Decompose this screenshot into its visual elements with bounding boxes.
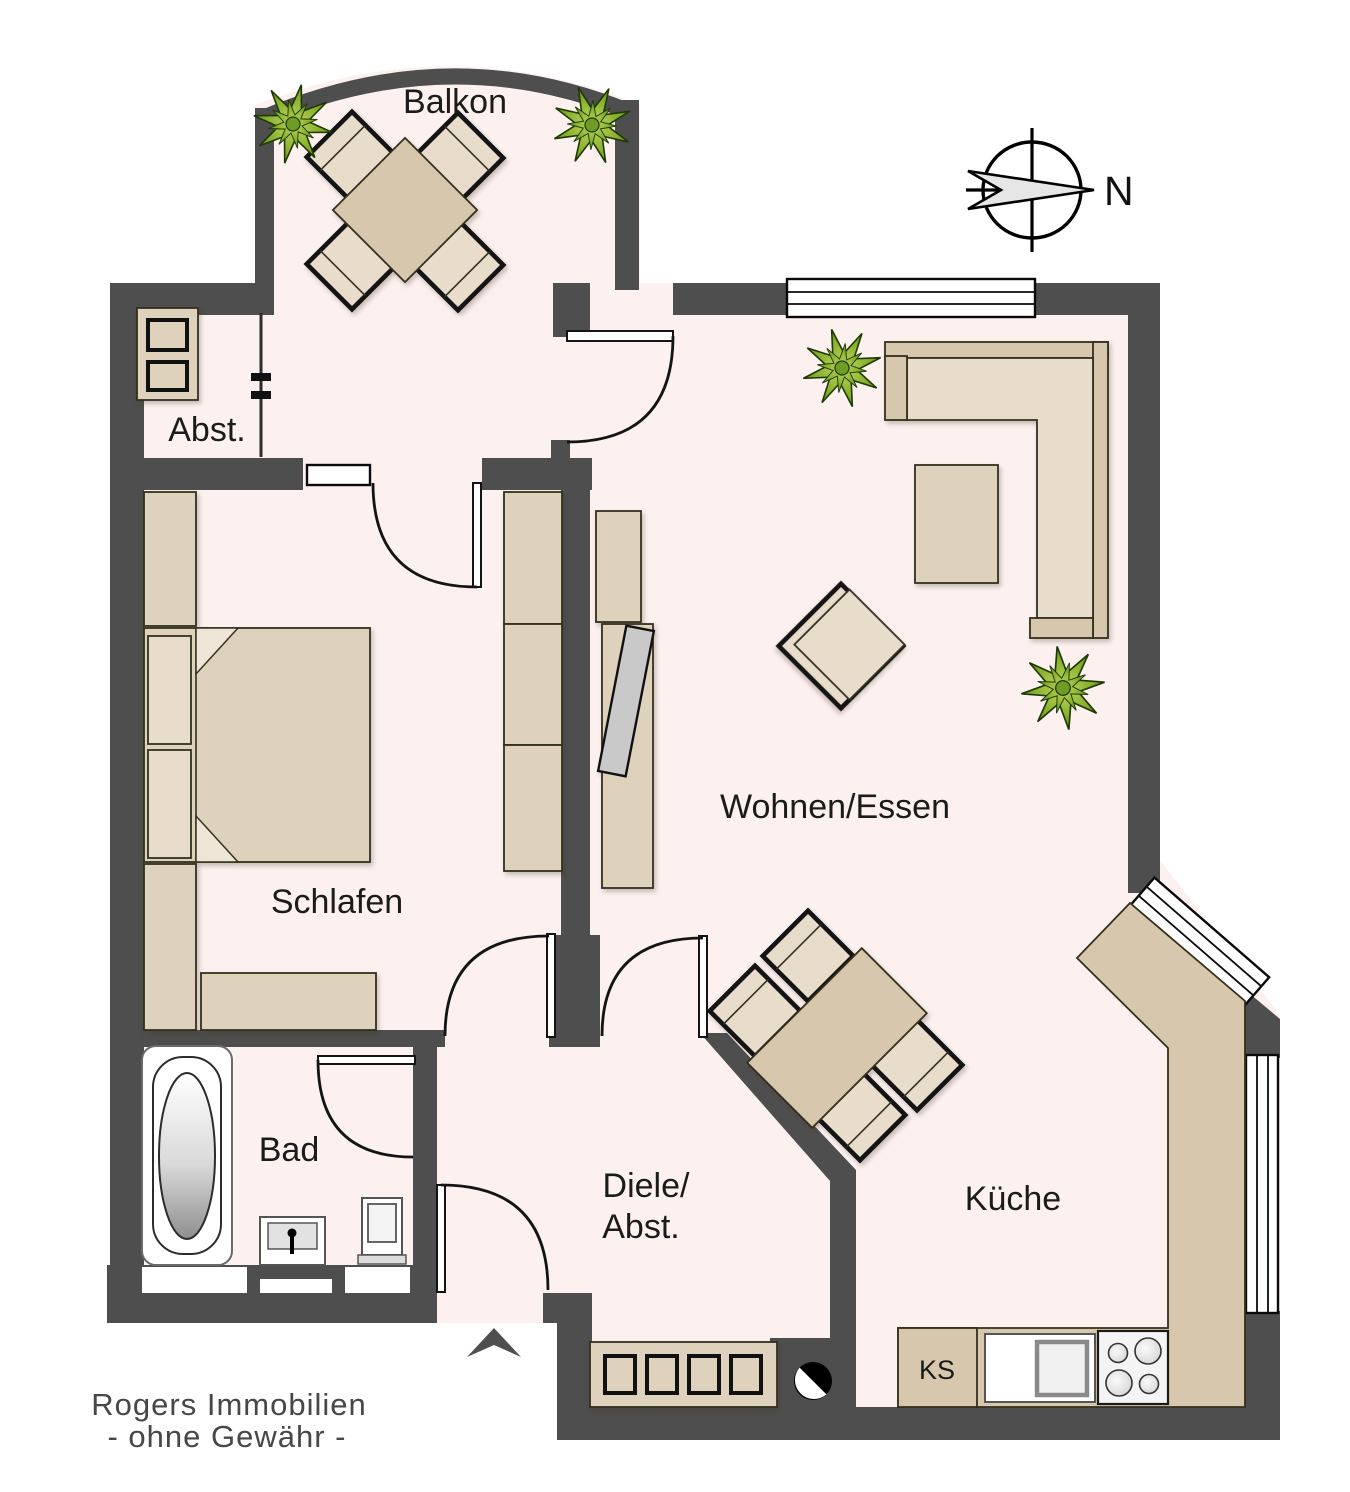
- bedroom-bench: [201, 973, 376, 1030]
- room-label-balkon: Balkon: [403, 83, 507, 121]
- room-label-diele-line1: Diele/: [603, 1167, 690, 1205]
- coffee-table: [915, 465, 998, 583]
- living-room-window: [787, 279, 1035, 317]
- kitchen-sink: [985, 1334, 1095, 1402]
- utility-circle-icon: [794, 1362, 832, 1400]
- compass-north-icon: [966, 128, 1094, 252]
- stove: [1098, 1331, 1168, 1404]
- room-label-bad: Bad: [259, 1131, 320, 1169]
- entrance-arrow-icon: [467, 1328, 521, 1357]
- fridge-label: KS: [919, 1355, 955, 1385]
- pillow: [148, 750, 191, 858]
- room-label-schlafen: Schlafen: [271, 883, 403, 921]
- double-bed: [144, 628, 370, 862]
- pillow: [148, 636, 191, 744]
- footer-disclaimer: - ohne Gewähr -: [108, 1419, 347, 1454]
- toilet: [358, 1198, 406, 1264]
- footer: Rogers Immobilien - ohne Gewähr -: [91, 1387, 366, 1454]
- kitchen-side-window: [1246, 1055, 1278, 1313]
- room-label-wohnen-essen: Wohnen/Essen: [720, 788, 950, 826]
- wardrobe-right: [504, 492, 562, 871]
- room-label-abstellraum: Abst.: [168, 411, 245, 449]
- bathtub: [142, 1046, 232, 1265]
- room-label-kueche: Küche: [965, 1180, 1061, 1218]
- north-label: N: [1104, 168, 1134, 214]
- washbasin: [260, 1217, 325, 1265]
- hall-wardrobe: [590, 1342, 777, 1407]
- floor-plan-page: Balkon Abst. Schlafen Wohnen/Essen Bad D…: [0, 0, 1350, 1492]
- room-label-diele-line2: Abst.: [602, 1208, 679, 1246]
- wardrobe: [144, 864, 196, 1030]
- wardrobe: [144, 492, 196, 626]
- balcony-dining-set: [307, 112, 504, 311]
- floor-plan-canvas: Balkon Abst. Schlafen Wohnen/Essen Bad D…: [0, 0, 1350, 1492]
- footer-company: Rogers Immobilien: [91, 1387, 366, 1422]
- bedroom-interior-window: [307, 465, 370, 485]
- storage-cabinet: [137, 308, 198, 400]
